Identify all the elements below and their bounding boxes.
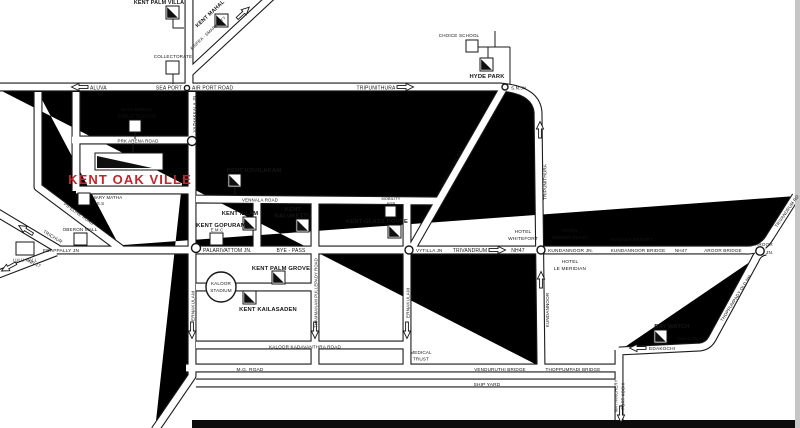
bay-watch-building-icon <box>654 330 667 343</box>
edakochi-label: EDAKOCHI <box>649 346 675 352</box>
chacolas-label: CHACOLAS <box>677 336 705 342</box>
aroor-jn-label2: JN. <box>766 250 773 255</box>
nh47-label: NH47 <box>511 248 524 254</box>
tripunithura-label: TRIPUNITHURA <box>356 85 396 91</box>
vennala-road-label: VENNALA ROAD <box>242 198 278 203</box>
hotel-le-meridian-label2: LE MERIDIAN <box>554 266 587 272</box>
vytilla-junction-circle <box>405 246 413 254</box>
mg-road-label: M.G. ROAD <box>237 367 264 373</box>
hotel-whitefort-label: HOTEL <box>515 229 532 235</box>
kent-glass-house-building-icon <box>388 225 401 238</box>
kundannoor-bridge-label: KUNDANNOOR BRIDGE <box>611 248 666 253</box>
kundannoor-jn-label: KUNDANNOOR JN. <box>548 248 593 254</box>
aroor-junction-circle <box>756 247 764 255</box>
prk-arena-road-label: PRK ARENA ROAD <box>118 139 159 144</box>
oberon-mall-label: OBERON MALL <box>63 227 98 232</box>
sn-jn-label: S.N.JN <box>511 85 526 90</box>
kundannoor-junction-circle <box>537 246 545 254</box>
emc-label: E.M.C <box>211 228 223 233</box>
map-canvas: KALOOR STADIUM <box>0 0 800 428</box>
road-network <box>0 0 796 428</box>
kent-palm-villa-label: KENT PALM VILLA <box>134 0 184 6</box>
ramada-resort-label: RAMADA RESORT <box>611 237 653 242</box>
collectorate-square-icon <box>166 61 179 74</box>
hotel-crown-plaza-label: HOTEL <box>562 228 579 234</box>
palarivattom-jn-label: PALARIVATTOM JN. <box>203 248 252 254</box>
lulu-mall-square-icon <box>16 242 34 255</box>
thammanam-pullepady-label: THAMMANAM PULLEPADY ROAD <box>314 258 319 328</box>
kaloor-stadium-label: KALOOR <box>211 281 232 286</box>
kent-palm-grove-building-icon <box>272 271 285 284</box>
mobility-hub-label: MOBILITY <box>382 197 401 201</box>
kochi-location-map: KALOOR STADIUM <box>0 0 800 428</box>
nh47-b-label: NH47 <box>675 248 688 253</box>
emc-square-icon <box>210 233 223 245</box>
vazhakkala-junction-circle <box>188 137 197 146</box>
venduruthi-bridge-label: VENDURUTHI BRIDGE <box>474 367 526 372</box>
image-edge-strip <box>795 0 800 428</box>
aluva-label: ALUVA <box>90 86 107 92</box>
seaport-junction-circle <box>184 85 189 90</box>
kent-glass-house-label: KENT GLASS HOUSE <box>346 219 408 225</box>
hotel-whitefort-label2: WHITEFORT <box>508 236 538 242</box>
choice-school-label: CHOICE SCHOOL <box>439 33 480 38</box>
hyde-park-building-icon <box>480 58 493 71</box>
hotel-crown-plaza-label2: CROWN PLAZA <box>552 235 589 241</box>
trivandrum-label: TRIVANDRUM <box>453 248 487 254</box>
kent-nalukettu-label2: NALUKETTU <box>275 214 312 220</box>
kent-kailasaden-building-icon <box>243 291 256 304</box>
aroor-bridge-label: AROOR BRIDGE <box>704 248 742 253</box>
kundannoor-vertical-label: KUNDANNOOR <box>545 292 550 327</box>
sea-port-label: SEA PORT <box>156 86 182 92</box>
kaloor-kadavanthra-road-label: KALOOR KADAVANTHRA ROAD <box>269 345 341 350</box>
collectorate-label: COLLECTORATE <box>154 54 192 59</box>
palarivattom-junction-circle <box>192 244 201 253</box>
kent-kovilakam-building-icon <box>228 174 241 187</box>
mary-matha-label: MARY MATHA <box>92 195 122 200</box>
medical-trust-label: MEDICAL <box>410 350 432 355</box>
vytilla-jn-label: VYTILLA JN <box>416 248 443 253</box>
kent-illam-label: KENT ILLAM <box>222 211 259 217</box>
air-port-road-label: AIR PORT ROAD <box>192 86 233 92</box>
mattanchery-label: MATTANCHERY <box>614 380 619 413</box>
nava-nirmal-label2: PUBLIC SCHOOL <box>117 114 157 119</box>
hyde-park-label: HYDE PARK <box>469 74 505 80</box>
tripunithura-vertical-label: TRIPUNITHURA <box>543 163 548 200</box>
vazhakkala-jn-label: VAZHAKKALA JN <box>192 96 197 133</box>
thoppumpadi-bridge-label: THOPPUMPADI BRIDGE <box>546 367 601 372</box>
sn-junction-circle <box>502 84 508 90</box>
edappally-jn-label: EDAPPALLY JN <box>43 248 80 254</box>
ernakulam-east-label: ERNAKULAM <box>406 288 411 318</box>
kent-palm-villa-building-icon <box>166 6 179 19</box>
mobility-hub-label2: HUB <box>387 202 396 206</box>
kent-kailasaden-label: KENT KAILASADEN <box>239 307 297 313</box>
ernakulam-west-label: ERNAKULAM <box>191 291 196 321</box>
choice-school-square-icon <box>466 40 478 52</box>
aroor-jn-label: AROOR <box>755 242 773 247</box>
kent-nalukettu-label: KENT <box>285 207 302 213</box>
kent-kovilakam-label: KENT KOVILAKAM <box>227 168 282 174</box>
hotel-le-meridian-label: HOTEL <box>562 259 579 265</box>
kaloor-stadium: KALOOR STADIUM <box>206 272 236 302</box>
medical-trust-label2: TRUST <box>413 357 429 362</box>
kent-nalukettu-building-icon <box>296 219 309 232</box>
bay-watch-label: BAY WATCH <box>654 324 689 330</box>
nava-nirmal-square-icon <box>129 120 141 132</box>
oberon-mall-square-icon <box>74 233 87 245</box>
mobility-hub-square-icon <box>385 206 396 217</box>
kent-palm-grove-label: KENT PALM GROVE <box>252 266 310 272</box>
bye-pass-label: BYE - PASS <box>277 248 306 254</box>
nava-nirmal-label: NAVA NIRMAL <box>121 107 153 112</box>
shoreline-bar <box>192 420 800 428</box>
kent-oak-ville-title: KENT OAK VILLE <box>68 172 192 187</box>
ship-yard-label: SHIP YARD <box>474 382 501 388</box>
kent-oak-ville-building-icon <box>95 153 163 170</box>
mary-matha-square-icon <box>78 193 90 205</box>
stadium-circle-icon <box>206 272 236 302</box>
kaloor-stadium-label2: STADIUM <box>210 288 231 293</box>
mary-matha-label2: H.S.S <box>92 201 104 206</box>
fort-kochi-label: FORT KOCHI <box>621 382 626 409</box>
